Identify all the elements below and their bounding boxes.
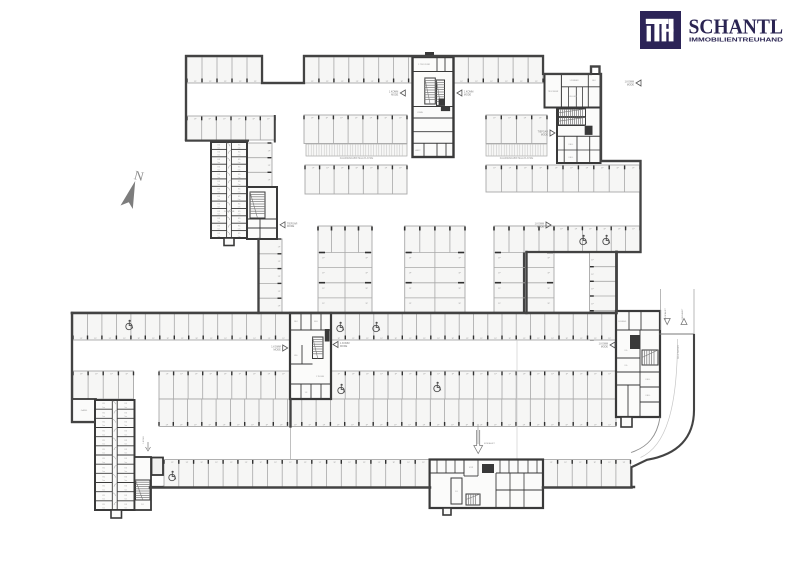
svg-text:5m: 5m	[102, 416, 105, 418]
svg-text:5m: 5m	[217, 229, 220, 231]
svg-text:5m: 5m	[124, 499, 127, 501]
svg-text:VOR: VOR	[469, 467, 474, 469]
svg-text:5m: 5m	[124, 425, 127, 427]
svg-text:5m: 5m	[238, 221, 241, 223]
svg-text:5m: 5m	[102, 425, 105, 427]
svg-text:MODE: MODE	[287, 225, 295, 228]
svg-text:MODE: MODE	[601, 345, 609, 348]
svg-text:MODE: MODE	[464, 93, 472, 96]
svg-text:5m: 5m	[217, 169, 220, 171]
svg-text:RAMPE 15%: RAMPE 15%	[676, 345, 679, 360]
svg-text:5m: 5m	[124, 471, 127, 473]
svg-text:5m: 5m	[124, 453, 127, 455]
svg-text:5m: 5m	[238, 206, 241, 208]
svg-text:1.KETHAB: 1.KETHAB	[224, 210, 235, 213]
svg-text:5m: 5m	[217, 177, 220, 179]
svg-text:1.KOMM: 1.KOMM	[143, 436, 145, 444]
svg-text:5m: 5m	[238, 155, 241, 157]
svg-text:1.KGANG: 1.KGANG	[618, 320, 627, 323]
svg-text:5m: 5m	[124, 508, 127, 510]
svg-text:KIWA: KIWA	[417, 111, 423, 114]
svg-text:1.TECHN: 1.TECHN	[316, 376, 325, 378]
svg-text:FAHRRADABSTELLPLATZE: FAHRRADABSTELLPLATZE	[340, 156, 374, 160]
svg-text:MODE: MODE	[537, 225, 545, 228]
svg-text:5m: 5m	[102, 499, 105, 501]
svg-text:5m: 5m	[102, 453, 105, 455]
svg-text:IMMOBILIENTREUHAND: IMMOBILIENTREUHAND	[689, 38, 783, 44]
svg-text:MODE: MODE	[391, 93, 399, 96]
svg-text:5m: 5m	[217, 206, 220, 208]
svg-text:5m: 5m	[102, 480, 105, 482]
svg-text:ABST: ABST	[415, 149, 421, 152]
svg-text:5m: 5m	[238, 184, 241, 186]
svg-text:5m: 5m	[102, 444, 105, 446]
svg-text:1.TROCKNR: 1.TROCKNR	[418, 64, 431, 66]
svg-text:5m: 5m	[124, 489, 127, 491]
svg-text:5m: 5m	[124, 434, 127, 436]
svg-text:5m: 5m	[124, 480, 127, 482]
svg-text:5m: 5m	[238, 214, 241, 216]
svg-text:5m: 5m	[238, 169, 241, 171]
svg-text:FAHRRADABSTELLPLATZE: FAHRRADABSTELLPLATZE	[500, 156, 534, 160]
svg-text:5m: 5m	[217, 214, 220, 216]
svg-text:5m: 5m	[238, 229, 241, 231]
svg-text:GANG: GANG	[81, 409, 88, 412]
svg-text:SCHANTL: SCHANTL	[689, 15, 784, 39]
svg-text:5m: 5m	[124, 416, 127, 418]
svg-text:5m: 5m	[238, 177, 241, 179]
svg-text:AUSFAHRT: AUSFAHRT	[664, 308, 667, 320]
svg-text:5m: 5m	[238, 162, 241, 164]
svg-text:5m: 5m	[217, 147, 220, 149]
svg-text:MODE: MODE	[541, 133, 549, 136]
svg-text:5m: 5m	[217, 162, 220, 164]
svg-text:5m: 5m	[238, 236, 241, 238]
svg-text:5m: 5m	[124, 444, 127, 446]
svg-text:5m: 5m	[217, 192, 220, 194]
svg-text:MODE: MODE	[340, 345, 348, 348]
svg-text:EINFAHRT: EINFAHRT	[484, 442, 495, 445]
svg-text:5m: 5m	[124, 462, 127, 464]
svg-text:KELL: KELL	[569, 157, 574, 159]
svg-text:TROCKENR: TROCKENR	[548, 91, 559, 93]
svg-text:5m: 5m	[102, 489, 105, 491]
svg-text:5m: 5m	[217, 184, 220, 186]
svg-text:MODE: MODE	[274, 348, 282, 351]
svg-text:5m: 5m	[238, 192, 241, 194]
svg-text:KEL: KEL	[294, 355, 298, 357]
svg-text:5m: 5m	[217, 199, 220, 201]
svg-text:5m: 5m	[102, 471, 105, 473]
svg-text:5m: 5m	[124, 407, 127, 409]
svg-text:KELLER: KELLER	[569, 96, 577, 98]
svg-text:5m: 5m	[102, 508, 105, 510]
svg-text:5m: 5m	[102, 407, 105, 409]
svg-text:1.ZIMMER: 1.ZIMMER	[569, 80, 579, 82]
svg-text:EINFAHRT: EINFAHRT	[681, 308, 684, 319]
svg-text:5m: 5m	[217, 221, 220, 223]
svg-text:5m: 5m	[217, 236, 220, 238]
svg-text:5m: 5m	[238, 147, 241, 149]
svg-text:MODE: MODE	[627, 83, 635, 86]
svg-text:5m: 5m	[238, 199, 241, 201]
svg-text:5m: 5m	[102, 434, 105, 436]
svg-text:5m: 5m	[102, 462, 105, 464]
svg-text:5m: 5m	[217, 155, 220, 157]
svg-text:KELL: KELL	[569, 144, 574, 146]
